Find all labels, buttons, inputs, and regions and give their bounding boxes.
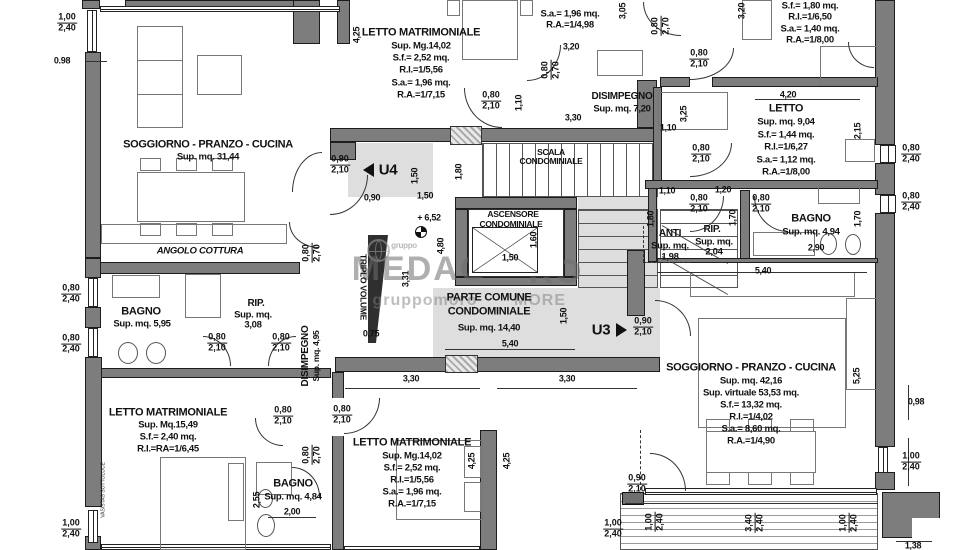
letto-1549-title: LETTO MATRIMONIALE bbox=[109, 408, 227, 419]
wall bbox=[875, 0, 895, 145]
letto-904-l5: S.a.= 1,12 mq. bbox=[757, 155, 816, 165]
window bbox=[88, 510, 98, 543]
dim-425-a: 4,25 bbox=[468, 453, 477, 469]
letto-bottom-l6: R.A.=1/7,15 bbox=[388, 499, 436, 509]
door-080-270-topright: 0,802,70 bbox=[651, 16, 672, 36]
soggiorno-42-l3: Sup. virtuale 53,53 mq. bbox=[703, 388, 799, 398]
dimension-height: 2,40 bbox=[901, 155, 921, 165]
room-topright-l4: R.A.=1/8,00 bbox=[786, 35, 834, 45]
door-arc-u3 bbox=[655, 300, 691, 336]
wall-hatch-block bbox=[450, 126, 482, 145]
letto-bottom-l4: R.I.=1/5,56 bbox=[390, 475, 433, 485]
wall bbox=[85, 52, 101, 258]
window-band-letto-bottom bbox=[344, 546, 480, 550]
wall bbox=[100, 262, 300, 274]
closet bbox=[742, 0, 772, 40]
letto-top-l5: S.a.= 1,96 mq. bbox=[392, 78, 451, 88]
dimension-height: 2,10 bbox=[633, 328, 653, 338]
dim-425-top: 4,25 bbox=[353, 27, 362, 43]
ascensore-l2: CONDOMINIALE bbox=[480, 220, 543, 229]
dim-170-a: 1,70 bbox=[729, 210, 738, 226]
dim-098-right: 0,98 bbox=[908, 398, 924, 407]
soggiorno-42-l6: S.a.= 8,60 mq. bbox=[722, 424, 781, 434]
dimension-height: 2,40 bbox=[61, 295, 81, 305]
dim-525: 5,25 bbox=[853, 368, 862, 384]
dimension-height: 2,40 bbox=[756, 513, 766, 533]
balc-100-240-a: 1,002,40 bbox=[645, 512, 666, 532]
floor-plan: SOGGIORNO - PRANZO - CUCINASup. mq. 31,4… bbox=[0, 0, 959, 550]
wall bbox=[85, 357, 102, 507]
unit-u3-label: U3 bbox=[592, 323, 611, 338]
wc bbox=[845, 234, 861, 255]
soggiorno-31-title: SOGGIORNO - PRANZO - CUCINA bbox=[123, 140, 293, 151]
wall bbox=[82, 0, 100, 9]
door-arc bbox=[292, 152, 322, 192]
unit-u4-label: U4 bbox=[379, 163, 398, 178]
anti-title: ANTI bbox=[659, 229, 681, 239]
dimension-height: 2,70 bbox=[313, 243, 323, 263]
dim-150-u4h: 1,50 bbox=[417, 192, 433, 201]
letto-bottom-l3: S.f.= 2,52 mq. bbox=[384, 463, 441, 473]
stair-flight-top bbox=[482, 143, 658, 197]
desk bbox=[845, 139, 875, 162]
bagno-595-area: Sup. mq. 5,95 bbox=[113, 319, 170, 329]
dim-090-u4: 0,90 bbox=[364, 194, 380, 203]
win-100-240-left3: 1,002,40 bbox=[61, 519, 81, 540]
window bbox=[88, 278, 98, 307]
parte-comune-l1: PARTE COMUNE bbox=[447, 293, 532, 304]
scala-l2: CONDOMINIALE bbox=[520, 157, 583, 166]
wall bbox=[740, 190, 750, 262]
dimension-height: 2,10 bbox=[330, 166, 350, 176]
wall bbox=[101, 368, 331, 378]
door-arc-balcony bbox=[650, 453, 686, 491]
watermark-gruppo: gruppo bbox=[391, 242, 417, 250]
door-080-210-bagno595: 0,802,10 bbox=[207, 333, 227, 354]
dimension-height: 2,10 bbox=[481, 102, 501, 112]
level-652: + 6,52 bbox=[417, 214, 440, 223]
soggiorno-42-l7: R.A.=1/4,90 bbox=[727, 436, 775, 446]
dim-330-b: 3,30 bbox=[559, 375, 575, 384]
dimension-height: 2,40 bbox=[850, 513, 860, 533]
dimension-height: 2,70 bbox=[662, 16, 672, 36]
wall bbox=[657, 258, 878, 263]
bagno-494-title: BAGNO bbox=[791, 214, 830, 225]
dim-120: 1,20 bbox=[715, 186, 731, 195]
dim-180-anti: 1,80 bbox=[647, 211, 656, 227]
dim-160-asc: 1,60 bbox=[530, 232, 539, 248]
dim-330-top: 3,30 bbox=[565, 114, 581, 123]
dim-075: 0,75 bbox=[363, 330, 379, 339]
dim-110-h1: 1,10 bbox=[660, 124, 676, 133]
door-080-210-lettotop: 0,802,10 bbox=[481, 91, 501, 112]
pillow bbox=[228, 463, 244, 521]
disimpegno-720-area: Sup. mq. 7,20 bbox=[593, 104, 650, 114]
dim-330-a: 3,30 bbox=[403, 375, 419, 384]
balc-100-240-b: 1,002,40 bbox=[839, 513, 860, 533]
dimension-line bbox=[625, 503, 878, 504]
door-090-210-u3: 0,902,10 bbox=[633, 317, 653, 338]
soggiorno-42-l2: Sup. mq. 42,16 bbox=[720, 376, 782, 386]
chair bbox=[706, 472, 730, 485]
dim-098-left: 0.98 bbox=[54, 57, 70, 66]
disimpegno-495-area: Sup. mq. 4,95 bbox=[312, 331, 321, 382]
letto-top-l4: R.I.=1/5,56 bbox=[399, 65, 442, 75]
win-080-240-right2: 0,802,40 bbox=[901, 192, 921, 213]
wall bbox=[85, 307, 101, 328]
shower-column bbox=[185, 274, 221, 318]
dimension-line bbox=[345, 388, 480, 389]
dim-150-asc: 1,50 bbox=[502, 254, 518, 263]
window-band-top bbox=[100, 6, 340, 12]
door-080-270-distop: 0,802,70 bbox=[541, 60, 562, 80]
dimension-height: 2,10 bbox=[691, 155, 711, 165]
dim-331: 3,31 bbox=[402, 271, 411, 287]
letto-904-l2: Sup. mq. 9,04 bbox=[757, 117, 814, 127]
dim-320-v: 3,20 bbox=[738, 3, 747, 19]
dimension-height: 2,40 bbox=[61, 530, 81, 540]
parte-comune-l2: CONDOMINIALE bbox=[448, 307, 531, 318]
letto-904-l3: S.f.= 1,44 mq. bbox=[758, 130, 815, 140]
dim-215: 2,15 bbox=[854, 123, 863, 139]
letto-top-l3: S.f.= 2,52 mq. bbox=[393, 53, 450, 63]
room-topright-l2: R.I.=1/6,50 bbox=[788, 12, 831, 22]
washbasin-counter bbox=[112, 275, 160, 298]
u3-direction-arrow-icon bbox=[616, 323, 627, 337]
soggiorno-42-title: SOGGIORNO - PRANZO - CUCINA bbox=[666, 363, 836, 374]
dim-425-b: 4,25 bbox=[503, 453, 512, 469]
win-100-240-bottom: 1,002,40 bbox=[603, 519, 623, 540]
rip-308-title: RIP. bbox=[248, 299, 265, 309]
dimension-height: 2,40 bbox=[656, 512, 666, 532]
balc-340-240: 3,402,40 bbox=[745, 513, 766, 533]
level-marker-icon bbox=[415, 226, 427, 238]
dim-138: 1,38 bbox=[905, 542, 921, 550]
room-topcenter-l2: R.A.=1/4,98 bbox=[546, 20, 594, 30]
rip-204-title: RIP. bbox=[704, 225, 721, 235]
dim-200: 2,00 bbox=[284, 508, 300, 517]
dimension-height: 2,10 bbox=[332, 416, 352, 426]
window bbox=[88, 328, 98, 357]
washbasin-counter bbox=[818, 186, 860, 204]
door-080-210-bagno494: 0,802,10 bbox=[751, 194, 771, 215]
window bbox=[878, 447, 888, 473]
room-topcenter-l1: S.a.= 1,96 mq. bbox=[541, 9, 600, 19]
angolo-cottura-label: ANGOLO COTTURA bbox=[157, 246, 244, 256]
door-080-270-bagno484: 0,802,70 bbox=[302, 445, 323, 465]
sofa bbox=[137, 26, 183, 128]
nightstand bbox=[447, 0, 460, 16]
soggiorno-31-area: Sup. mq. 31,44 bbox=[177, 152, 239, 162]
dimension-line bbox=[268, 517, 316, 518]
wall bbox=[875, 163, 895, 195]
letto-top-l6: R.A.=1/7,15 bbox=[397, 90, 445, 100]
wall bbox=[660, 77, 690, 87]
bagno-484-title: BAGNO bbox=[273, 479, 312, 490]
elevator-wall-top bbox=[455, 197, 577, 209]
dim-180-scala: 1,80 bbox=[455, 164, 464, 180]
dashed-line bbox=[643, 226, 644, 262]
wall bbox=[875, 213, 895, 447]
door-090-210-balc: 0,902,10 bbox=[627, 474, 647, 495]
chair bbox=[790, 472, 814, 485]
dimension-height: 2,40 bbox=[61, 345, 81, 355]
door-080-210-lettob: 0,802,10 bbox=[332, 405, 352, 426]
triplo-volume-label: TRIPLO VOLUME bbox=[359, 254, 368, 320]
dim-305: 3,05 bbox=[619, 3, 628, 19]
disimpegno-720-title: DISIMPEGNO bbox=[592, 92, 653, 102]
anti-sub: Sup. mq. bbox=[651, 241, 689, 251]
door-080-210-tr1: 0,802,10 bbox=[689, 49, 709, 70]
pillow bbox=[464, 482, 481, 512]
bidet bbox=[146, 342, 166, 364]
chair bbox=[140, 158, 161, 171]
door-080-210-dis495a: 0,802,10 bbox=[273, 406, 293, 427]
bagno-484-area: Sup. mq. 4,84 bbox=[264, 492, 321, 502]
win-080-240-right1: 0,802,40 bbox=[901, 144, 921, 165]
dimension-height: 2,10 bbox=[689, 60, 709, 70]
letto-1549-l3: S.f.= 2,40 mq. bbox=[140, 432, 197, 442]
dimension-height: 2,70 bbox=[313, 445, 323, 465]
door-080-270-cottura: 0,802,70 bbox=[302, 243, 323, 263]
cabinet bbox=[597, 50, 643, 76]
room-topright-l1: S.f.= 1,80 mq. bbox=[782, 1, 839, 11]
letto-top-title: LETTO MATRIMONIALE bbox=[362, 28, 480, 39]
dimension-height: 2,10 bbox=[207, 344, 227, 354]
soggiorno-42-l4: S.f.= 13,32 mq. bbox=[720, 400, 782, 410]
door-090-210-u4: 0,902,10 bbox=[330, 155, 350, 176]
win-100-240-right3: 1,002,40 bbox=[901, 452, 921, 473]
chair bbox=[790, 419, 814, 432]
room-topright-l3: S.a.= 1,40 mq. bbox=[781, 24, 840, 34]
letto-904-l4: R.I.=1/6,27 bbox=[764, 142, 807, 152]
dimension-height: 2,40 bbox=[901, 463, 921, 473]
dim-540-right: 5,40 bbox=[755, 267, 771, 276]
dim-255: 2,55 bbox=[253, 492, 262, 508]
dimension-height: 2,70 bbox=[552, 60, 562, 80]
dimension-line bbox=[85, 61, 107, 62]
dimension-height: 2,40 bbox=[901, 203, 921, 213]
rug bbox=[197, 55, 242, 95]
window bbox=[87, 10, 97, 52]
rip-308-area: 3,08 bbox=[244, 320, 261, 330]
disimpegno-495-title: DISIMPEGNO bbox=[301, 326, 311, 387]
letto-bottom-l2: Sup. Mg.14,02 bbox=[382, 451, 441, 461]
letto-1549-l4: R.I.=RA=1/6,45 bbox=[137, 444, 199, 454]
wall-hatch-block bbox=[445, 355, 478, 373]
dim-320-h: 3,20 bbox=[563, 43, 579, 52]
letto-bottom-l5: S.a.= 1,96 mq. bbox=[383, 487, 442, 497]
dimension-height: 2,10 bbox=[689, 205, 709, 215]
wall bbox=[875, 472, 895, 490]
win-100-240-topleft: 1,002,40 bbox=[57, 13, 77, 34]
letto-bottom-title: LETTO MATRIMONIALE bbox=[353, 438, 471, 449]
dimension-height: 2,40 bbox=[57, 24, 77, 34]
letto-1549-l2: Sup. Mq.15,49 bbox=[138, 420, 197, 430]
letto-904-l6: R.A.=1/8,00 bbox=[762, 167, 810, 177]
ascensore-l1: ASCENSORE bbox=[487, 210, 538, 219]
dimension-height: 2,10 bbox=[751, 205, 771, 215]
bagno-595-title: BAGNO bbox=[121, 307, 160, 318]
rip-204-area: 2,04 bbox=[705, 247, 722, 257]
window bbox=[880, 145, 896, 163]
dimension-line bbox=[445, 349, 575, 350]
dim-420: 4,20 bbox=[780, 91, 796, 100]
chair bbox=[748, 472, 772, 485]
door-080-210-letto904: 0,802,10 bbox=[691, 144, 711, 165]
dim-110-v1: 1,10 bbox=[515, 95, 524, 111]
anti-area: 1,98 bbox=[661, 252, 678, 262]
soggiorno-42-l5: R.I.=1/4,02 bbox=[729, 412, 772, 422]
bagno-494-area: Sup. mq. 4,94 bbox=[782, 227, 839, 237]
dim-170-b: 1,70 bbox=[854, 211, 863, 227]
dimension-line bbox=[497, 388, 637, 389]
dimension-height: 2,10 bbox=[627, 485, 647, 495]
dining-table bbox=[137, 172, 245, 222]
kitchen-counter bbox=[101, 224, 287, 244]
parte-comune-l3: Sup. mq. 14,40 bbox=[458, 323, 520, 333]
nightstand bbox=[520, 0, 533, 16]
wall bbox=[335, 357, 660, 372]
dim-325: 3,25 bbox=[680, 106, 689, 122]
wall bbox=[330, 128, 660, 142]
dim-150-u4v: 1,50 bbox=[411, 168, 420, 184]
dim-290: 2,90 bbox=[808, 244, 824, 253]
dimension-height: 2,40 bbox=[603, 530, 623, 540]
u4-direction-arrow-icon bbox=[363, 163, 374, 177]
letto-904-title: LETTO bbox=[769, 104, 803, 115]
door-arc-u4 bbox=[330, 175, 368, 215]
win-080-240-left1: 0,802,40 bbox=[61, 284, 81, 305]
dim-480: 4,80 bbox=[437, 238, 446, 254]
door-080-210-rip308: 0,802,10 bbox=[271, 333, 291, 354]
dimension-height: 2,10 bbox=[273, 417, 293, 427]
win-080-240-left2: 0,802,40 bbox=[61, 334, 81, 355]
dimension-height: 2,10 bbox=[271, 344, 291, 354]
vasistas-note: VASISTAS SOTTOLUCE bbox=[102, 462, 107, 518]
kitchen-counter bbox=[690, 272, 855, 297]
dim-540-pc: 5,40 bbox=[502, 340, 518, 349]
wall bbox=[85, 258, 101, 278]
dim-150-u3: 1,50 bbox=[560, 308, 569, 324]
pillar-notch bbox=[912, 518, 940, 538]
dim-110-h2: 1,10 bbox=[659, 187, 675, 196]
letto-top-l2: Sup. Mg.14,02 bbox=[391, 41, 450, 51]
window bbox=[880, 195, 896, 213]
dimension-line bbox=[755, 99, 860, 100]
door-080-210-rip204: 0,802,10 bbox=[689, 194, 709, 215]
wc bbox=[118, 342, 138, 364]
